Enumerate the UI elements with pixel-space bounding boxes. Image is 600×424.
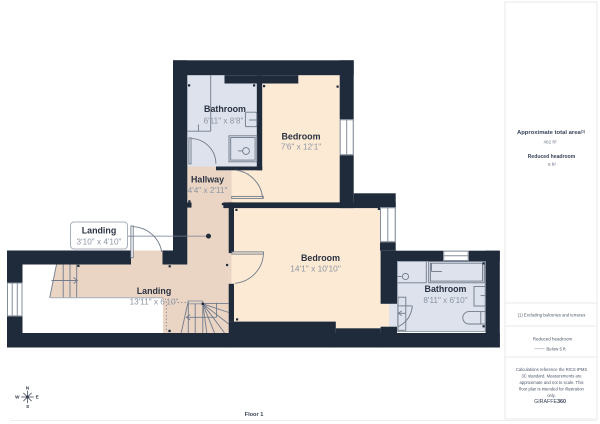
svg-text:3C standard. Measurements are: 3C standard. Measurements are bbox=[521, 374, 582, 379]
svg-text:7'6" x 12'1": 7'6" x 12'1" bbox=[281, 143, 321, 152]
svg-text:13'11" x 6'10": 13'11" x 6'10" bbox=[130, 298, 179, 307]
svg-text:Bedroom: Bedroom bbox=[301, 253, 340, 263]
svg-text:4'4" x 2'11": 4'4" x 2'11" bbox=[188, 186, 228, 195]
svg-text:N: N bbox=[26, 385, 30, 390]
svg-text:S: S bbox=[26, 404, 29, 409]
svg-text:482 ft²: 482 ft² bbox=[543, 140, 556, 145]
svg-text:W: W bbox=[15, 395, 20, 400]
svg-text:Calculations reference the RIC: Calculations reference the RICS IPMS bbox=[516, 367, 587, 372]
svg-text:8'11" x 6'10": 8'11" x 6'10" bbox=[423, 296, 467, 305]
svg-text:Below 5 ft: Below 5 ft bbox=[546, 347, 566, 352]
svg-text:(1) Excluding balconies and te: (1) Excluding balconies and terraces bbox=[518, 313, 586, 318]
svg-text:Landing: Landing bbox=[82, 226, 117, 236]
svg-text:E: E bbox=[36, 395, 39, 400]
svg-text:Hallway: Hallway bbox=[191, 175, 224, 185]
svg-text:Reduced headroom: Reduced headroom bbox=[528, 154, 576, 160]
svg-text:floor plan is intended for ill: floor plan is intended for illustration bbox=[519, 387, 584, 392]
svg-text:Reduced headroom: Reduced headroom bbox=[533, 337, 573, 342]
svg-text:3'10" x 4'10": 3'10" x 4'10" bbox=[77, 238, 122, 247]
svg-text:6'11" x 8'8": 6'11" x 8'8" bbox=[204, 117, 244, 126]
svg-text:only.: only. bbox=[547, 393, 556, 398]
svg-text:8 ft²: 8 ft² bbox=[548, 162, 556, 167]
svg-text:14'1" x 10'10": 14'1" x 10'10" bbox=[290, 264, 341, 274]
svg-text:Bathroom: Bathroom bbox=[425, 284, 467, 294]
svg-text:Bathroom: Bathroom bbox=[204, 104, 246, 114]
svg-text:GIRAFFE360: GIRAFFE360 bbox=[534, 399, 566, 405]
svg-text:Approximate total area(1): Approximate total area(1) bbox=[517, 130, 585, 137]
svg-text:Landing: Landing bbox=[137, 286, 172, 296]
svg-text:approximate and not to scale.: approximate and not to scale. This bbox=[520, 380, 584, 385]
svg-text:Bedroom: Bedroom bbox=[282, 132, 321, 142]
svg-text:Floor 1: Floor 1 bbox=[245, 412, 264, 418]
